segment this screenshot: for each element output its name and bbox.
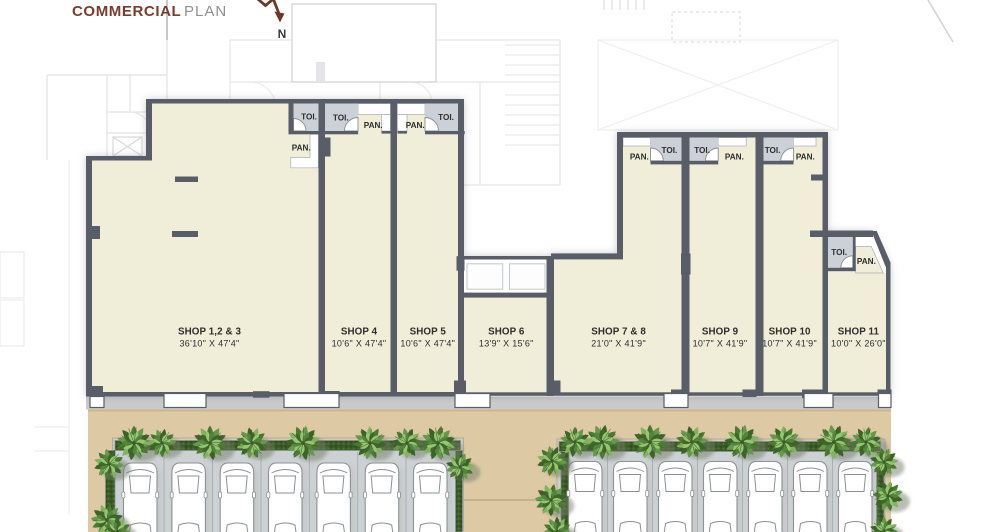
svg-text:SHOP 10: SHOP 10 [769,327,811,338]
svg-text:TOI.: TOI. [694,146,710,155]
svg-text:PAN.: PAN. [292,144,311,153]
svg-text:SHOP 6: SHOP 6 [488,327,525,338]
svg-text:TOI.: TOI. [831,248,847,257]
svg-text:N: N [278,27,287,41]
svg-text:10'7" X 41'9": 10'7" X 41'9" [693,339,748,349]
svg-text:TOI.: TOI. [662,146,678,155]
svg-text:10'7" X 41'9": 10'7" X 41'9" [762,339,817,349]
svg-text:10'6" X 47'4": 10'6" X 47'4" [332,339,387,349]
svg-text:SHOP 5: SHOP 5 [410,327,447,338]
svg-text:SHOP 7 & 8: SHOP 7 & 8 [591,327,646,338]
svg-text:TOI.: TOI. [438,113,454,122]
svg-text:PAN.: PAN. [796,153,815,162]
svg-text:PAN.: PAN. [364,121,383,130]
svg-text:PAN.: PAN. [857,257,876,266]
svg-text:TOI.: TOI. [301,113,317,122]
svg-text:21'0" X 41'9": 21'0" X 41'9" [591,339,646,349]
svg-text:PAN.: PAN. [406,121,425,130]
svg-text:13'9" X 15'6": 13'9" X 15'6" [479,339,534,349]
svg-text:PLAN: PLAN [184,3,227,20]
svg-text:TOI.: TOI. [333,113,349,122]
svg-text:36'10" X 47'4": 36'10" X 47'4" [179,339,239,349]
svg-text:PAN.: PAN. [630,153,649,162]
svg-text:10'6" X 47'4": 10'6" X 47'4" [400,339,455,349]
svg-text:10'0" X 26'0": 10'0" X 26'0" [831,339,886,349]
svg-text:COMMERCIAL: COMMERCIAL [72,3,181,20]
svg-text:TOI.: TOI. [765,146,781,155]
svg-text:SHOP 4: SHOP 4 [341,327,378,338]
svg-text:SHOP 1,2 & 3: SHOP 1,2 & 3 [178,327,242,338]
svg-text:SHOP 9: SHOP 9 [702,327,739,338]
svg-text:SHOP 11: SHOP 11 [838,327,880,338]
svg-text:PAN.: PAN. [725,153,744,162]
